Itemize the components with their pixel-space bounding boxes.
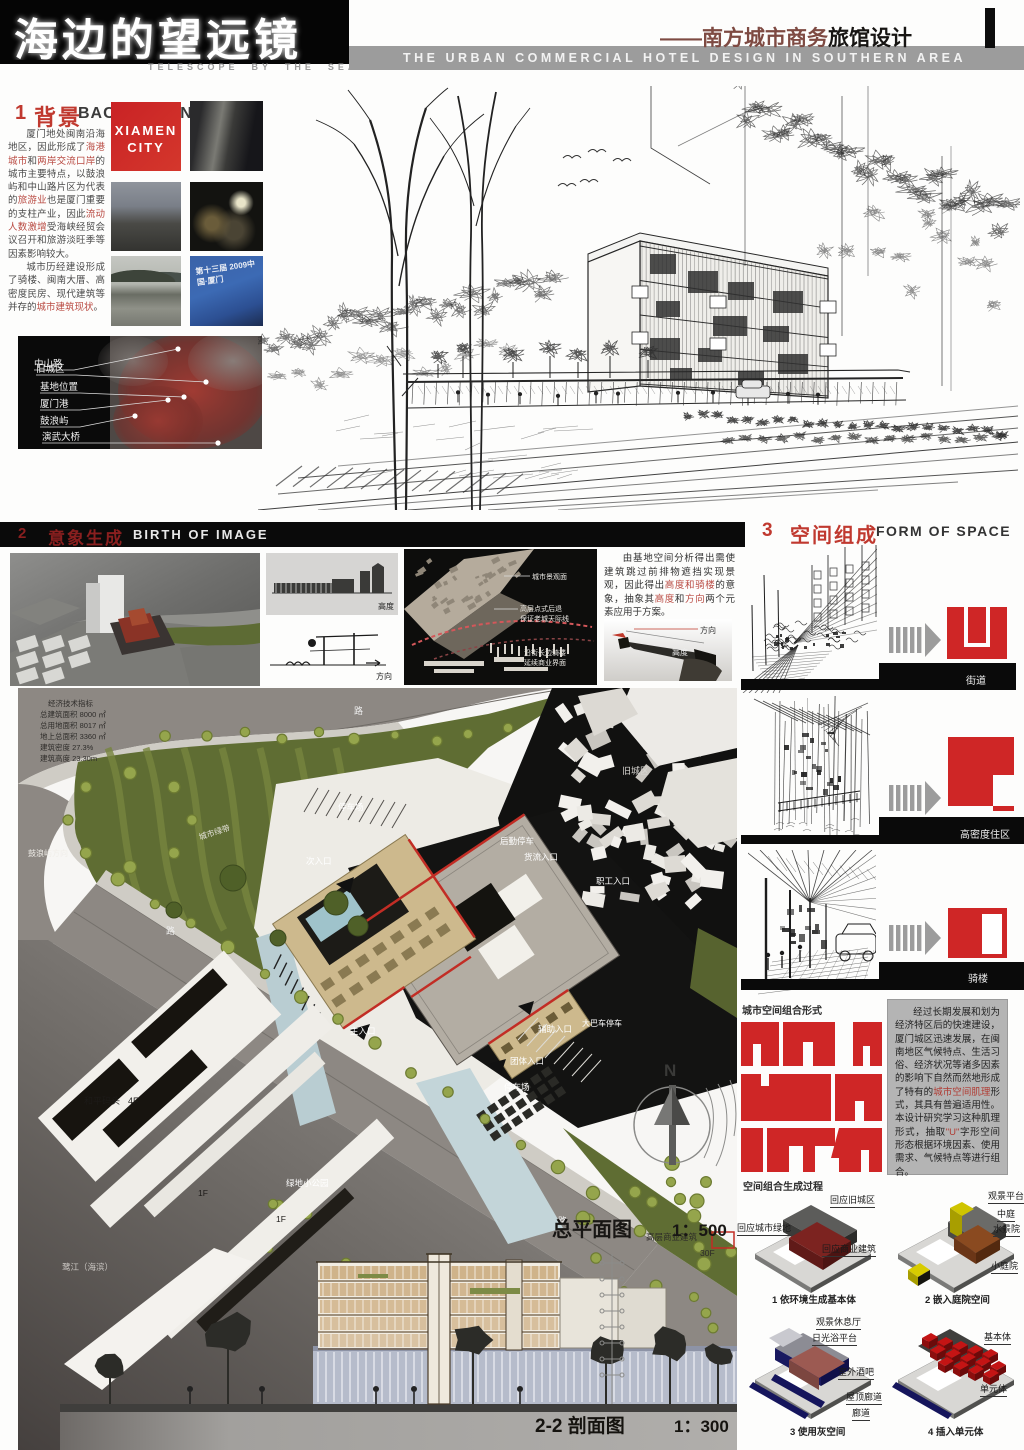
svg-text:4F: 4F <box>128 1096 139 1106</box>
svg-text:团体入口: 团体入口 <box>510 1056 544 1066</box>
svg-text:2-2 剖面图: 2-2 剖面图 <box>535 1414 625 1437</box>
svg-text:职工入口: 职工入口 <box>596 876 630 886</box>
svg-text:旧城区: 旧城区 <box>622 766 649 776</box>
svg-text:1：500: 1：500 <box>672 1221 727 1240</box>
svg-text:鼓浪屿: 鼓浪屿 <box>40 415 69 427</box>
svg-text:城市景观面: 城市景观面 <box>532 572 567 581</box>
svg-text:延续商业界面: 延续商业界面 <box>524 658 566 667</box>
svg-text:路: 路 <box>354 705 363 716</box>
svg-text:旧城区: 旧城区 <box>36 364 65 375</box>
svg-text:大巴车停车: 大巴车停车 <box>582 1018 622 1028</box>
svg-text:停车场: 停车场 <box>504 1082 530 1092</box>
svg-text:厦门港: 厦门港 <box>40 398 69 410</box>
svg-text:主入口: 主入口 <box>350 1026 376 1036</box>
svg-text:30F: 30F <box>700 1248 715 1258</box>
svg-text:货流入口: 货流入口 <box>524 852 558 862</box>
svg-text:高度: 高度 <box>378 601 394 611</box>
svg-text:演武大桥: 演武大桥 <box>42 431 81 443</box>
svg-text:1：300: 1：300 <box>674 1417 729 1436</box>
svg-text:总平面图: 总平面图 <box>552 1217 632 1241</box>
svg-text:高度: 高度 <box>672 647 688 657</box>
svg-text:1F: 1F <box>276 1214 286 1224</box>
svg-text:建筑高度 23.30m: 建筑高度 23.30m <box>40 753 97 763</box>
svg-text:基地位置: 基地位置 <box>40 381 78 393</box>
svg-text:方向: 方向 <box>376 671 392 681</box>
svg-text:路: 路 <box>166 925 175 936</box>
svg-text:保证老城天际线: 保证老城天际线 <box>520 614 569 623</box>
svg-text:高层点式后退: 高层点式后退 <box>520 604 562 613</box>
svg-text:辅助入口: 辅助入口 <box>538 1024 572 1034</box>
svg-text:鼓浪屿方向: 鼓浪屿方向 <box>28 848 68 858</box>
svg-text:总建筑面积 8000 ㎡: 总建筑面积 8000 ㎡ <box>40 709 106 719</box>
svg-text:停车场: 停车场 <box>338 802 364 812</box>
svg-text:鹭江（海滨）: 鹭江（海滨） <box>62 1262 113 1272</box>
svg-text:N: N <box>664 1061 676 1080</box>
svg-text:总用地面积 8017 ㎡: 总用地面积 8017 ㎡ <box>40 720 106 730</box>
svg-text:地上总面积 3360 ㎡: 地上总面积 3360 ㎡ <box>40 731 106 741</box>
svg-text:1F: 1F <box>198 1188 208 1198</box>
svg-text:和平码头: 和平码头 <box>84 1096 120 1106</box>
svg-text:建筑密度 27.3%: 建筑密度 27.3% <box>40 742 94 752</box>
svg-text:方向: 方向 <box>700 625 716 635</box>
svg-text:经济技术指标: 经济技术指标 <box>48 698 93 708</box>
svg-text:后勤停车: 后勤停车 <box>500 836 534 846</box>
svg-text:次入口: 次入口 <box>306 856 332 866</box>
svg-text:绿地小公园: 绿地小公园 <box>286 1178 329 1188</box>
svg-text:沿街长边骑楼: 沿街长边骑楼 <box>524 648 566 657</box>
